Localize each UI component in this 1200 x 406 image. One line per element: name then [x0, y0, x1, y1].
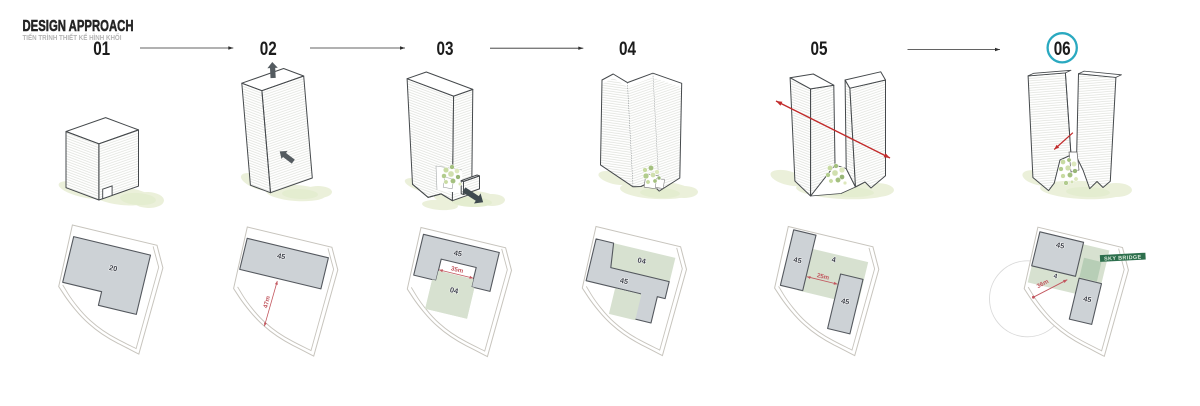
svg-text:06: 06	[1054, 39, 1071, 60]
svg-text:03: 03	[437, 39, 454, 60]
svg-text:01: 01	[93, 39, 110, 60]
svg-text:05: 05	[811, 39, 828, 60]
svg-text:DESIGN APPROACH: DESIGN APPROACH	[23, 18, 134, 35]
svg-text:04: 04	[619, 39, 636, 60]
svg-text:02: 02	[260, 39, 277, 60]
